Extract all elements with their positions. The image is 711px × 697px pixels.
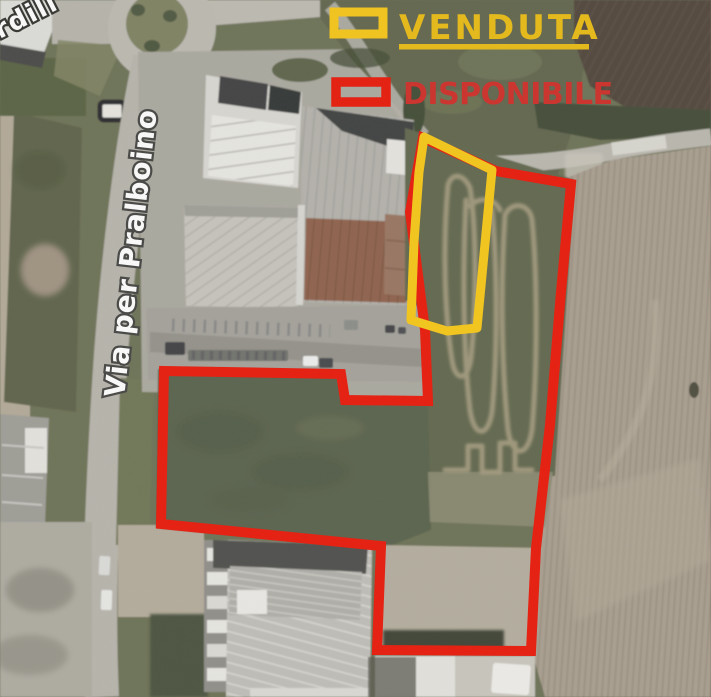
map-canvas[interactable]: VENDUTA DISPONIBILE Via per Pralboino or… bbox=[0, 0, 711, 697]
photo-grain-overlay bbox=[0, 0, 711, 697]
aerial-map-screenshot[interactable]: VENDUTA DISPONIBILE Via per Pralboino or… bbox=[0, 0, 711, 697]
